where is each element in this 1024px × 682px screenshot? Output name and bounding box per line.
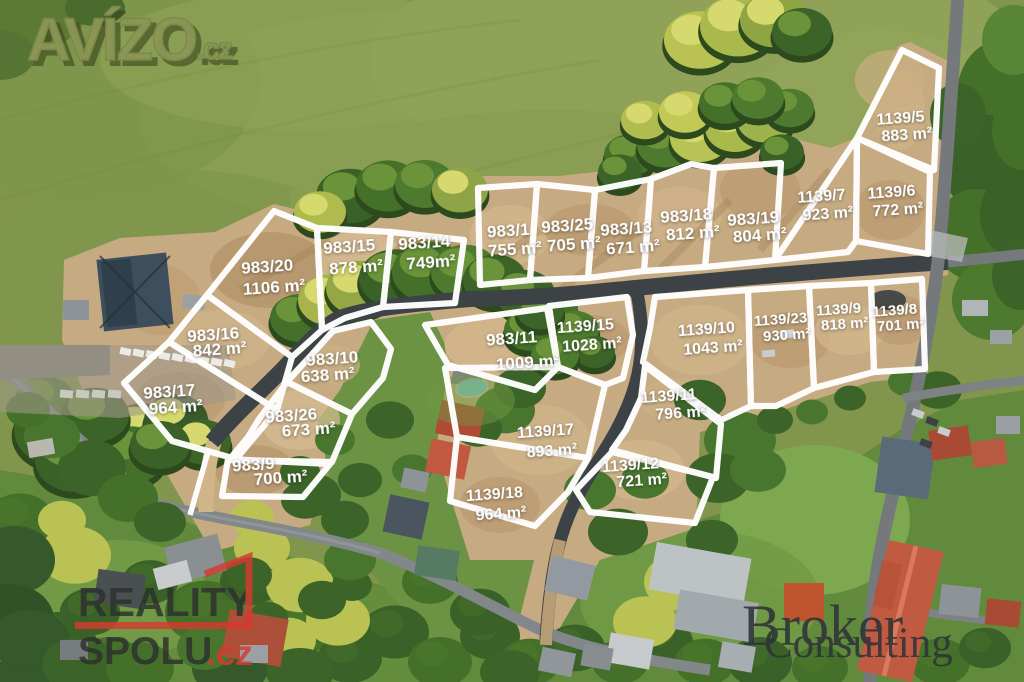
svg-text:983/13 671 m²: 983/13 671 m²	[600, 217, 661, 259]
svg-text:.cz: .cz	[206, 634, 253, 673]
svg-text:983/25 705 m²: 983/25 705 m²	[541, 214, 602, 256]
svg-text:796 m²: 796 m²	[655, 403, 707, 423]
svg-text:983/17 964 m²: 983/17 964 m²	[143, 380, 204, 419]
svg-text:1139/5 883 m²: 1139/5 883 m²	[876, 108, 933, 146]
svg-text:983/18 812 m²: 983/18 812 m²	[660, 204, 721, 245]
svg-text:983/16 842 m²: 983/16 842 m²	[187, 323, 248, 361]
svg-text:REALITY: REALITY	[78, 579, 253, 625]
svg-text:1139/7 923 m²: 1139/7 923 m²	[797, 186, 854, 225]
svg-text:Consulting: Consulting	[764, 620, 953, 667]
svg-text:1139/6 772 m²: 1139/6 772 m²	[867, 182, 924, 221]
svg-text:SPOLU: SPOLU	[78, 630, 212, 673]
svg-text:983/11: 983/11	[485, 327, 537, 350]
svg-text:1139/9 818 m²: 1139/9 818 m²	[816, 299, 869, 335]
svg-text:983/19 804 m²: 983/19 804 m²	[727, 207, 788, 247]
svg-text:983/14 749m²: 983/14 749m²	[398, 231, 457, 274]
svg-text:1139/8 701 m²: 1139/8 701 m²	[872, 300, 925, 336]
